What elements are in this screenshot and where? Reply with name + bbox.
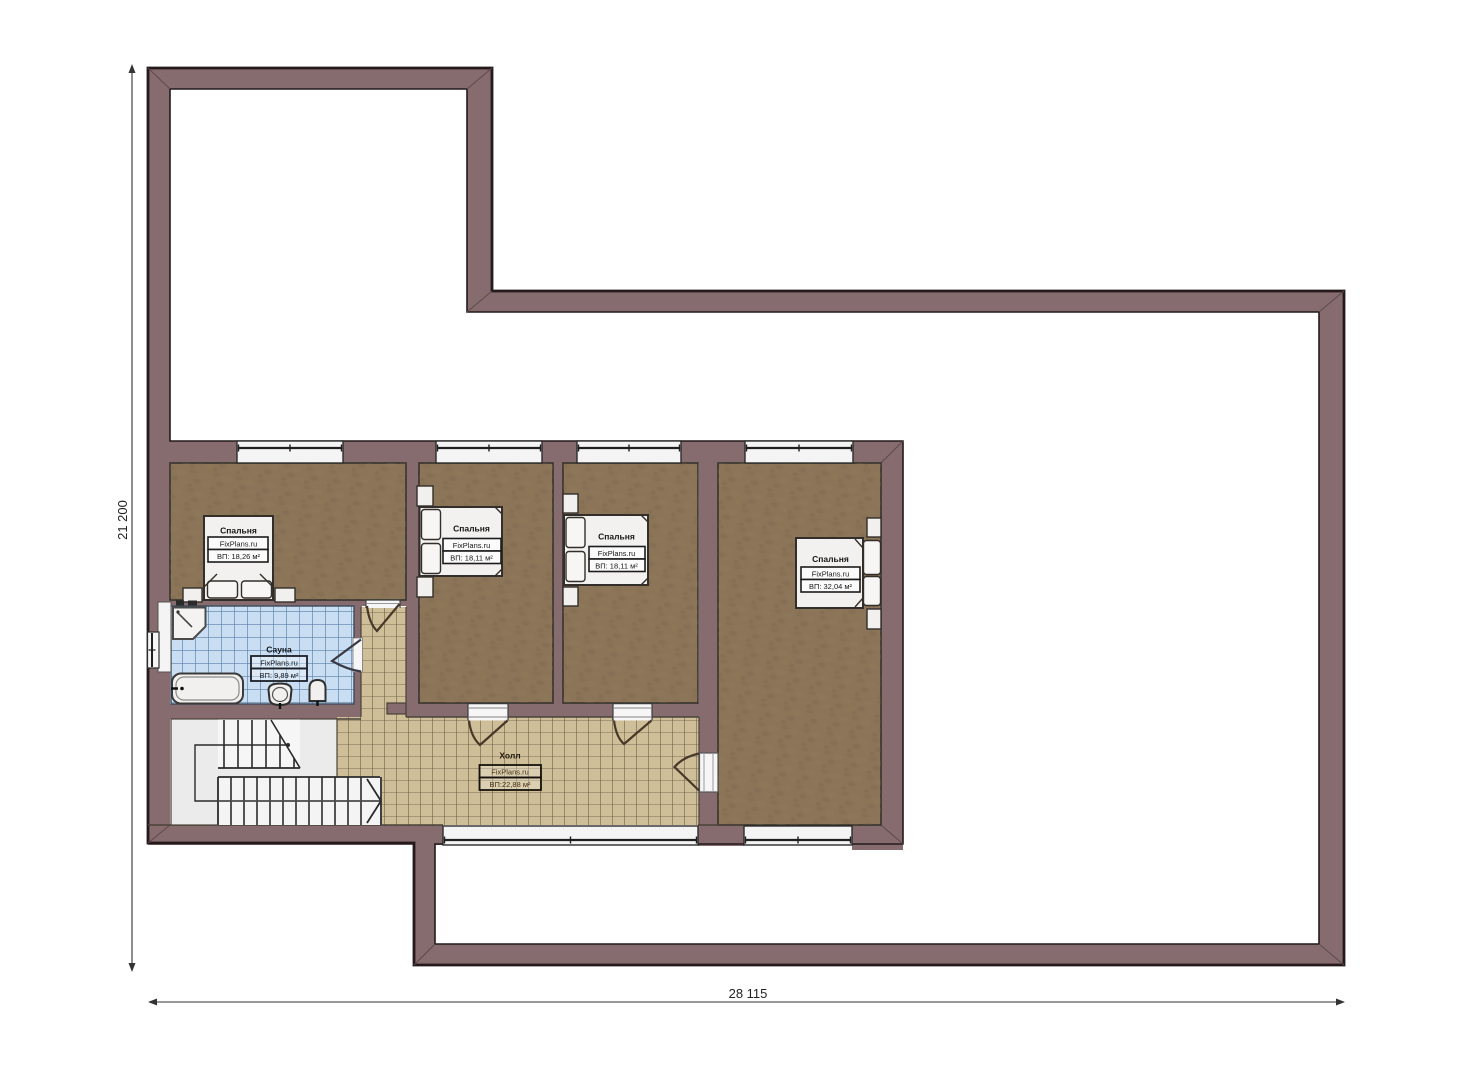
svg-text:Спальня: Спальня xyxy=(220,526,257,536)
svg-text:FixPlans.ru: FixPlans.ru xyxy=(220,540,258,549)
svg-text:FixPlans.ru: FixPlans.ru xyxy=(491,768,529,777)
svg-text:FixPlans.ru: FixPlans.ru xyxy=(453,541,491,550)
svg-text:Спальня: Спальня xyxy=(453,524,490,534)
svg-text:ВП: 32,04 м²: ВП: 32,04 м² xyxy=(809,582,853,591)
svg-text:FixPlans.ru: FixPlans.ru xyxy=(812,570,850,579)
svg-text:28 115: 28 115 xyxy=(729,986,768,1001)
svg-text:Холл: Холл xyxy=(499,751,520,761)
svg-text:FixPlans.ru: FixPlans.ru xyxy=(260,659,298,668)
svg-text:FixPlans.ru: FixPlans.ru xyxy=(598,549,636,558)
svg-text:ВП: 18,26 м²: ВП: 18,26 м² xyxy=(217,552,261,561)
svg-text:ВП: 18,11 м²: ВП: 18,11 м² xyxy=(450,554,493,563)
svg-text:Спальня: Спальня xyxy=(598,532,635,542)
svg-text:ВП:22,88 м²: ВП:22,88 м² xyxy=(490,780,531,789)
svg-text:Сауна: Сауна xyxy=(266,645,292,655)
svg-text:Спальня: Спальня xyxy=(812,554,849,564)
svg-text:21 200: 21 200 xyxy=(115,500,130,540)
svg-text:ВП: 18,11 м²: ВП: 18,11 м² xyxy=(595,562,638,571)
svg-text:ВП: 9,89 м²: ВП: 9,89 м² xyxy=(260,671,299,680)
